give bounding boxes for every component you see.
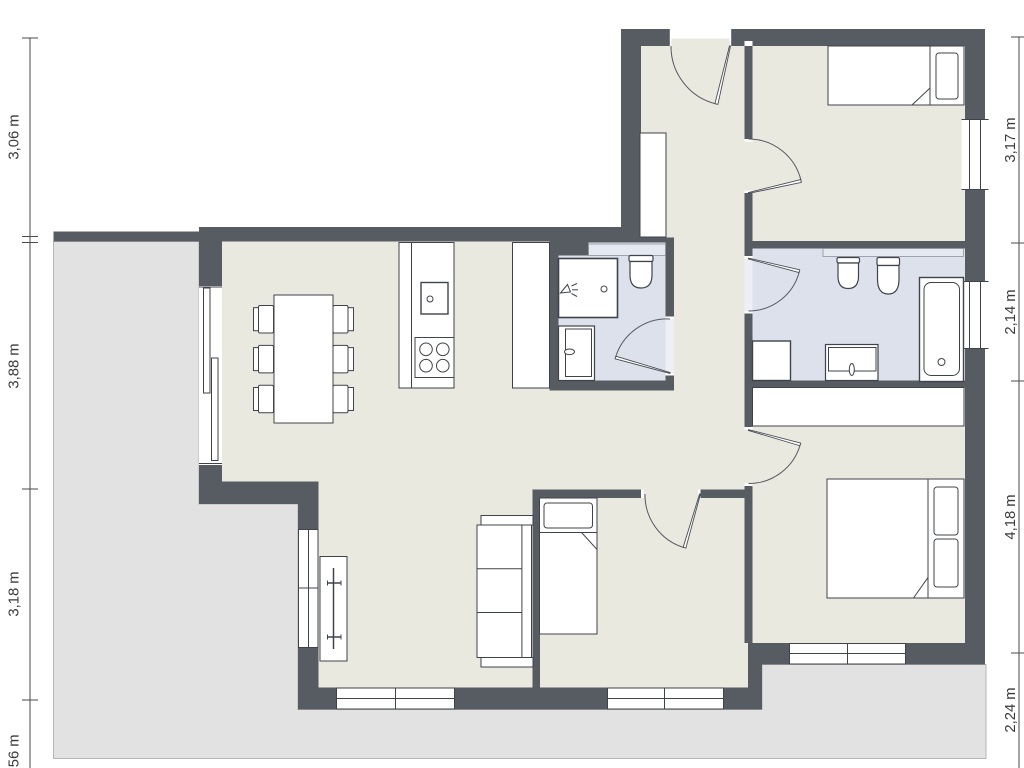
svg-text:3,18 m: 3,18 m: [7, 571, 23, 616]
svg-text:3,06 m: 3,06 m: [7, 114, 23, 159]
svg-text:1,56 m: 1,56 m: [7, 734, 23, 768]
svg-text:2,24 m: 2,24 m: [1003, 687, 1019, 732]
svg-text:3,17 m: 3,17 m: [1003, 117, 1019, 162]
svg-text:3,88 m: 3,88 m: [7, 343, 23, 388]
svg-text:4,18 m: 4,18 m: [1003, 494, 1019, 539]
svg-text:2,14 m: 2,14 m: [1003, 289, 1019, 334]
